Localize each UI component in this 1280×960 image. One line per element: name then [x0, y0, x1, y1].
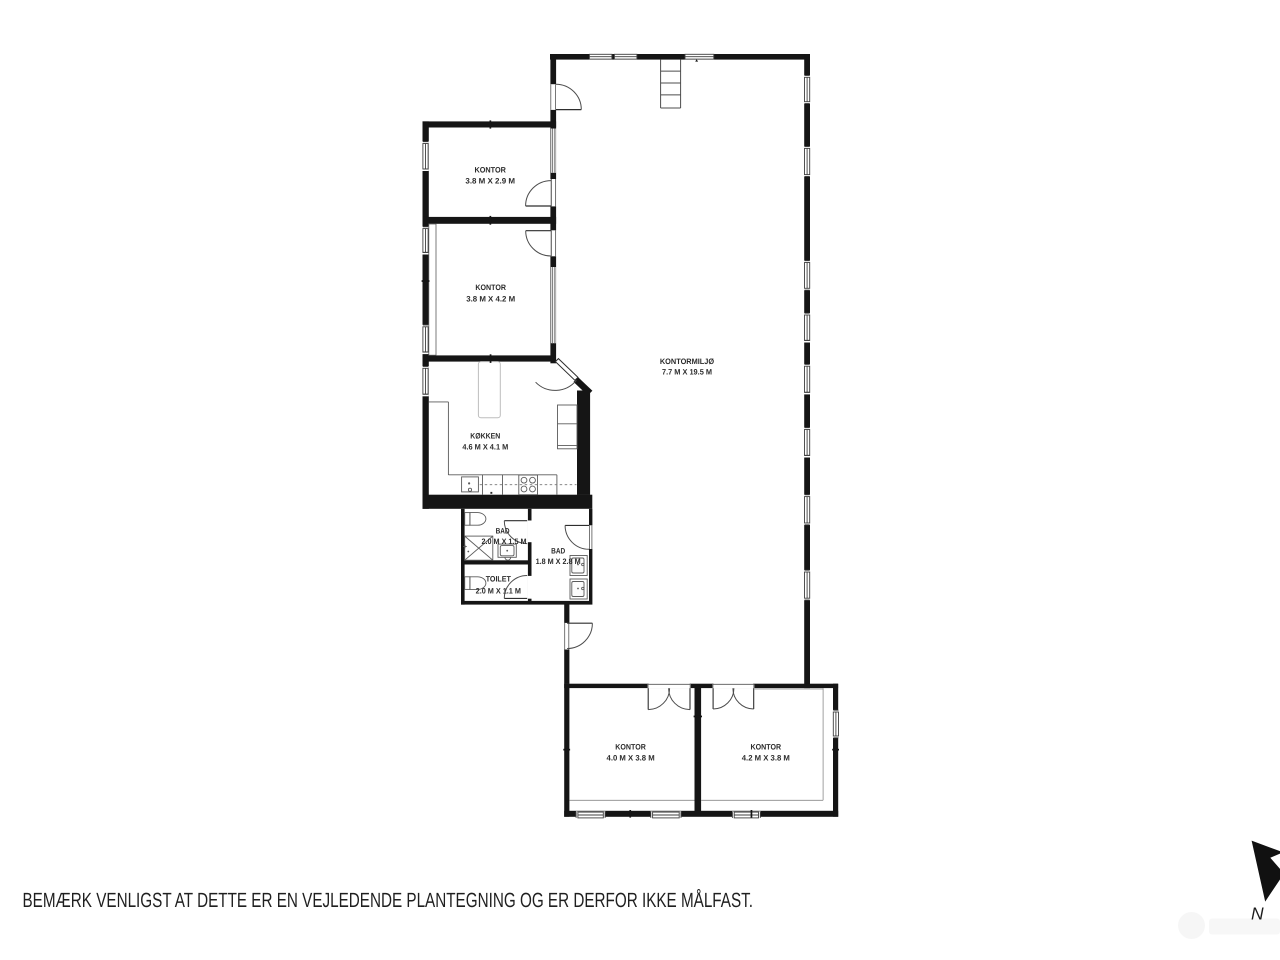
svg-text:3.8 M X 2.9 M: 3.8 M X 2.9 M — [465, 176, 515, 185]
svg-text:KONTOR: KONTOR — [475, 283, 506, 292]
svg-text:1.8 M X 2.8 M: 1.8 M X 2.8 M — [536, 557, 581, 566]
svg-text:BAD: BAD — [496, 527, 510, 536]
svg-text:2.0 M X 1.1 M: 2.0 M X 1.1 M — [476, 586, 522, 595]
svg-text:4.2 M X 3.8 M: 4.2 M X 3.8 M — [742, 754, 791, 763]
svg-text:TOILET: TOILET — [486, 574, 511, 583]
svg-text:2.0 M X 1.5 M: 2.0 M X 1.5 M — [482, 537, 527, 546]
svg-text:BEMÆRK VENLIGST AT DETTE ER EN: BEMÆRK VENLIGST AT DETTE ER EN VEJLEDEND… — [23, 889, 754, 912]
svg-text:KONTOR: KONTOR — [751, 743, 782, 752]
svg-text:N: N — [1251, 904, 1264, 924]
svg-text:KØKKEN: KØKKEN — [470, 431, 500, 440]
svg-text:3.8 M X 4.2 M: 3.8 M X 4.2 M — [466, 294, 515, 303]
svg-text:7.7 M X 19.5 M: 7.7 M X 19.5 M — [662, 368, 712, 377]
svg-text:4.6 M X 4.1 M: 4.6 M X 4.1 M — [462, 443, 508, 452]
svg-text:KONTOR: KONTOR — [615, 743, 646, 752]
svg-text:BAD: BAD — [551, 546, 565, 555]
svg-text:KONTORMILJØ: KONTORMILJØ — [660, 357, 714, 366]
svg-text:KONTOR: KONTOR — [474, 166, 506, 175]
svg-text:4.0 M X 3.8 M: 4.0 M X 3.8 M — [607, 754, 656, 763]
